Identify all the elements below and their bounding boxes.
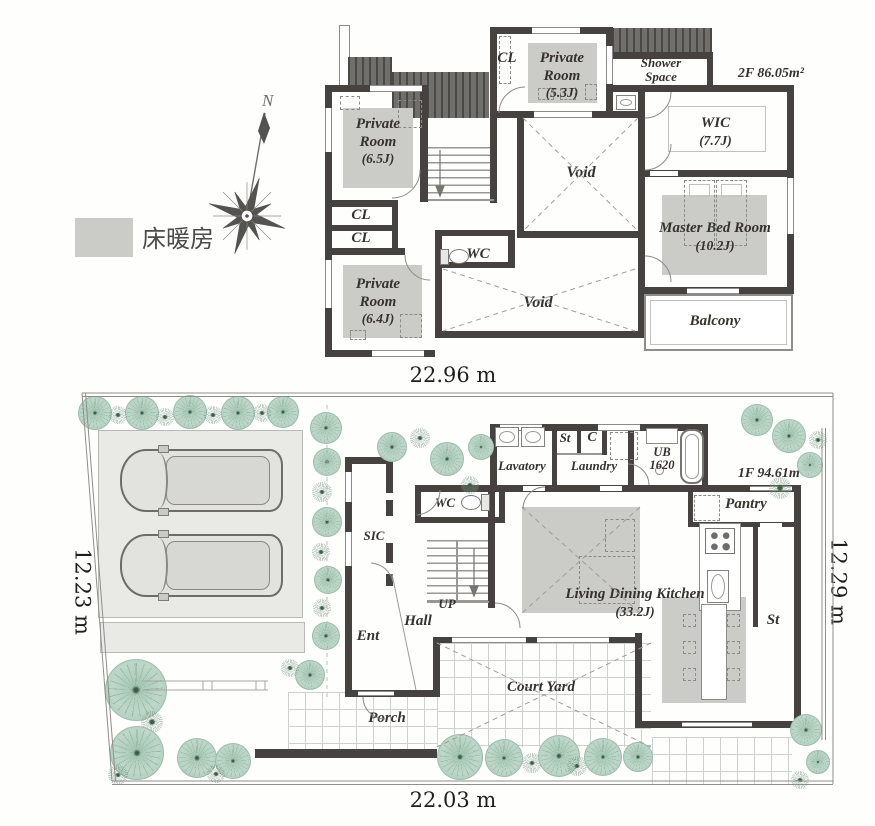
tree-icon <box>623 742 653 772</box>
room-label-wc-2f: WC <box>463 246 493 264</box>
tree-icon <box>790 714 822 746</box>
tree-icon <box>125 396 159 430</box>
shrub-icon <box>156 408 174 426</box>
pillow <box>721 184 742 197</box>
wall <box>688 492 693 525</box>
roof-hatch-left <box>348 57 392 88</box>
washbasin-icon <box>616 95 636 110</box>
room-label-wic: WIC (7.7J) <box>668 115 763 149</box>
wall <box>433 637 440 694</box>
shrub-icon <box>312 482 332 502</box>
room-label-private-c: Private Room (6.4J) <box>336 276 420 327</box>
tree-icon <box>772 419 806 453</box>
window <box>325 260 332 308</box>
chair-outline <box>683 668 696 681</box>
room-label-wc-1f: WC <box>430 496 460 510</box>
room-size: (10.2J) <box>640 238 790 254</box>
shrub-icon <box>281 659 299 677</box>
room-label-sic: SIC <box>355 529 393 543</box>
car-mirror <box>158 508 169 516</box>
bathtub-icon <box>680 429 704 484</box>
shrub-icon <box>410 428 430 448</box>
room-label-closet-2: CL <box>346 230 376 248</box>
window <box>345 472 352 502</box>
tree-icon <box>221 396 255 430</box>
toilet-tank <box>481 494 490 511</box>
room-label-private-a: Private Room (6.5J) <box>336 116 420 167</box>
dimension-left: 12.23 m <box>70 547 93 637</box>
window <box>325 108 332 152</box>
wall <box>386 500 393 516</box>
wall <box>607 85 794 92</box>
washer-outline <box>610 432 638 460</box>
wall <box>517 231 645 238</box>
window <box>372 350 424 357</box>
room-size: (6.5J) <box>336 151 420 167</box>
window <box>682 722 752 727</box>
room-size: (33.2J) <box>560 604 710 620</box>
shrub-icon <box>108 765 128 785</box>
chair-outline <box>727 641 740 654</box>
wall <box>325 200 398 207</box>
wall <box>435 230 515 236</box>
tree-icon <box>797 452 823 478</box>
room-label-storage-top: St <box>554 431 576 445</box>
lavatory-sink-icon <box>521 427 545 447</box>
lavatory-sink-icon <box>495 427 519 447</box>
room-label-closet-c: C <box>582 430 602 445</box>
wall <box>325 248 405 255</box>
dimension-top: 22.96 m <box>405 364 501 387</box>
dimension-bottom: 22.03 m <box>405 789 501 812</box>
tree-icon <box>485 739 523 777</box>
tree-icon <box>377 432 407 462</box>
garden-tiles <box>652 737 792 785</box>
wall <box>753 527 758 627</box>
room-name: Living Dining Kitchen <box>565 586 704 602</box>
car-icon <box>120 533 283 598</box>
shrub-icon <box>461 476 479 494</box>
room-label-pantry: Pantry <box>714 496 778 514</box>
car-icon <box>120 448 283 513</box>
stove-icon <box>705 528 735 554</box>
compass-north-label: N <box>262 92 273 109</box>
window <box>598 424 640 431</box>
room-label-master: Master Bed Room (10.2J) <box>640 220 790 254</box>
room-label-porch: Porch <box>358 710 416 728</box>
furniture-outline <box>605 519 635 552</box>
room-label-courtyard: Court Yard <box>496 679 586 697</box>
tree-icon <box>173 395 207 429</box>
car-mirror <box>158 445 169 453</box>
entry-door <box>358 691 394 696</box>
tree-icon <box>310 412 342 444</box>
room-label-storage-right: St <box>760 612 786 630</box>
floor1-area-label: 1F 94.61m² <box>722 466 804 483</box>
stairs-up-label: UP <box>432 597 462 611</box>
wall <box>508 230 515 268</box>
wall <box>415 517 505 523</box>
window <box>345 532 352 566</box>
kitchen-sink-icon <box>707 570 729 603</box>
floor-heating-swatch <box>75 218 133 257</box>
tree-icon <box>313 448 341 476</box>
garden-wall <box>255 749 437 758</box>
chair-outline <box>727 668 740 681</box>
wall <box>435 331 645 338</box>
entry-step-line <box>392 574 416 690</box>
furniture-outline <box>350 330 366 340</box>
room-label-private-b: Private Room (5.3J) <box>524 50 600 101</box>
room-name: WIC <box>701 115 730 131</box>
door-opening <box>523 486 545 491</box>
window <box>534 111 592 118</box>
tree-icon <box>806 750 830 774</box>
car-roof <box>166 541 270 590</box>
roof-hatch-shower <box>612 28 712 52</box>
tree-icon <box>584 738 622 776</box>
wall <box>635 633 642 728</box>
tree-icon <box>267 396 299 428</box>
door-opening <box>760 523 782 527</box>
window <box>606 46 613 84</box>
car-mirror <box>158 593 169 601</box>
tree-icon <box>430 442 464 476</box>
car-windshield <box>150 453 168 508</box>
car-roof <box>166 456 270 505</box>
room-label-void-center: Void <box>558 164 604 183</box>
door-opening <box>650 171 678 176</box>
shrub-icon <box>204 406 222 424</box>
wall <box>386 457 393 493</box>
floor-heating-label: 床暖房 <box>142 226 214 255</box>
room-size: (5.3J) <box>524 85 600 101</box>
room-name: Private Room <box>540 50 584 84</box>
room-label-laundry: Laundry <box>562 459 626 473</box>
driveway-pad-lower <box>100 622 305 653</box>
window <box>537 637 609 643</box>
dimension-right: 12.29 m <box>826 537 849 627</box>
car-mirror <box>158 530 169 538</box>
tree-icon <box>295 660 325 690</box>
room-name: Master Bed Room <box>659 220 771 236</box>
window <box>532 27 580 34</box>
car-windshield <box>150 538 168 593</box>
wall <box>386 574 393 586</box>
room-label-closet-top: CL <box>493 50 521 68</box>
room-label-bath: UB 1620 <box>645 446 679 472</box>
tree-icon <box>741 404 773 436</box>
room-label-hall: Hall <box>395 613 441 631</box>
room-label-void-lower: Void <box>513 294 563 313</box>
shrub-icon <box>253 404 271 422</box>
shrub-icon <box>769 477 791 499</box>
floor-plan-canvas: 床暖房 N <box>0 0 875 826</box>
room-label-ldk: Living Dining Kitchen (33.2J) <box>560 586 710 620</box>
room-label-shower: Shower Space <box>629 56 693 85</box>
room-size: (7.7J) <box>668 133 763 149</box>
shrub-icon <box>313 599 331 617</box>
bath-counter <box>646 428 678 444</box>
window <box>370 85 422 92</box>
room-label-closet-1: CL <box>346 207 376 225</box>
shrub-icon <box>809 431 827 449</box>
toilet-tank <box>440 249 449 265</box>
tree-icon <box>312 507 342 537</box>
stair-divider <box>456 540 458 602</box>
wall <box>517 111 524 238</box>
tree-icon <box>437 734 483 780</box>
tree-icon <box>312 622 340 650</box>
shrub-icon <box>207 765 225 783</box>
room-label-entrance: Ent <box>350 628 386 646</box>
room-name: Private Room <box>356 116 400 150</box>
chair-outline <box>683 641 696 654</box>
chair-outline <box>727 614 740 627</box>
tree-icon <box>314 566 342 594</box>
stairs-2f <box>428 147 490 202</box>
window <box>452 637 526 643</box>
toilet-icon <box>461 495 481 510</box>
shrub-icon <box>312 543 330 561</box>
shrub-icon <box>109 406 127 424</box>
wall <box>499 487 505 523</box>
door-opening <box>600 486 622 491</box>
wall <box>577 424 581 455</box>
wall <box>435 230 442 338</box>
tree-icon <box>78 396 112 430</box>
floor2-area-label: 2F 86.05m² <box>722 66 804 83</box>
room-size: (6.4J) <box>336 311 420 327</box>
room-name: Private Room <box>356 276 400 310</box>
shrub-icon <box>791 771 809 789</box>
pillow <box>689 184 710 197</box>
room-label-balcony: Balcony <box>680 313 750 331</box>
closet-edge <box>557 453 602 455</box>
furniture-outline <box>340 96 360 110</box>
tree-icon <box>468 434 494 460</box>
room-label-lavatory: Lavatory <box>492 459 552 473</box>
wall <box>386 543 393 563</box>
